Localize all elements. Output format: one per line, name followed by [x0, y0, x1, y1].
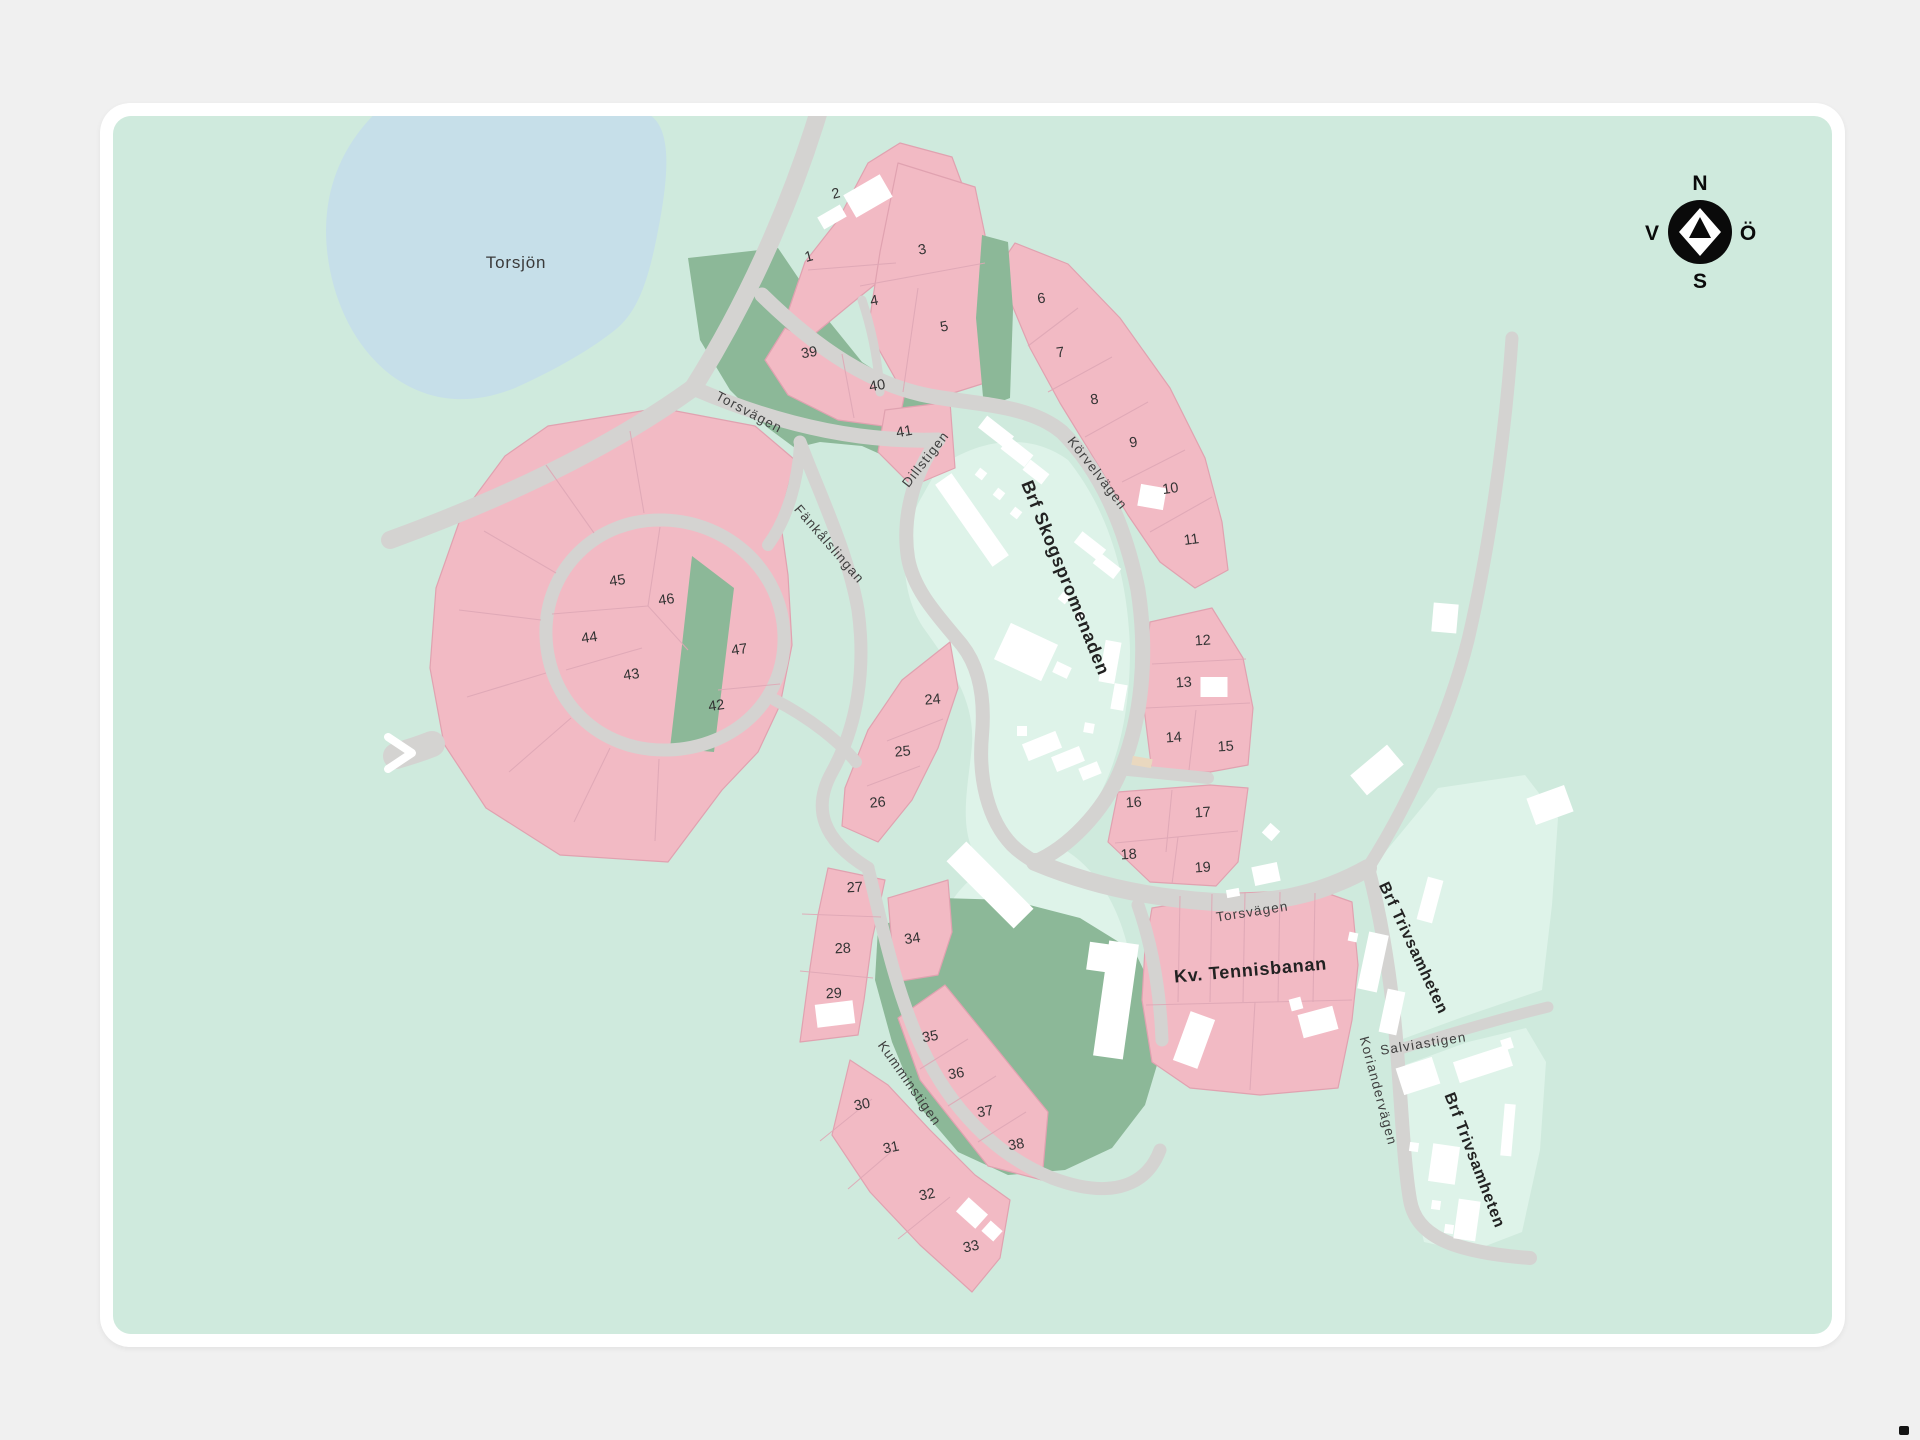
lot-number-37: 37 — [976, 1103, 995, 1122]
lake-label: Torsjön — [486, 253, 546, 272]
compass-east-label: Ö — [1740, 222, 1756, 245]
lot-number-27: 27 — [846, 880, 863, 897]
page: { "compass": {"north":"N","south":"S","w… — [0, 0, 1920, 1440]
lot-number-43: 43 — [622, 666, 640, 684]
lot-number-14: 14 — [1165, 729, 1182, 746]
lot-number-36: 36 — [947, 1065, 966, 1084]
lot-number-44: 44 — [580, 629, 598, 647]
lot-number-33: 33 — [962, 1238, 981, 1257]
lot-number-13: 13 — [1175, 674, 1192, 691]
screen-artifact-dot — [1899, 1426, 1909, 1435]
lot-number-26: 26 — [869, 794, 886, 811]
lot-number-25: 25 — [894, 743, 911, 760]
lot-number-16: 16 — [1125, 794, 1142, 811]
lot-number-34: 34 — [903, 930, 921, 948]
lot-number-18: 18 — [1120, 846, 1137, 863]
lot-number-24: 24 — [924, 691, 941, 708]
lot-number-46: 46 — [657, 591, 675, 609]
road-stub-deadend — [1128, 770, 1208, 778]
site-map: Torsjön Torsvägen Dillstigen Körvelvägen… — [113, 116, 1832, 1334]
lot-number-47: 47 — [730, 641, 748, 659]
lot-number-41: 41 — [895, 423, 914, 442]
lot-number-42: 42 — [707, 697, 725, 715]
map-card: Torsjön Torsvägen Dillstigen Körvelvägen… — [100, 103, 1845, 1347]
lot-number-15: 15 — [1217, 738, 1234, 755]
block-tennisbanan — [1142, 890, 1358, 1095]
lot-number-28: 28 — [834, 941, 851, 958]
lot-number-31: 31 — [882, 1139, 901, 1158]
lot-number-29: 29 — [825, 986, 842, 1003]
lot-number-19: 19 — [1194, 859, 1211, 876]
lot-number-32: 32 — [918, 1186, 937, 1205]
compass-north-label: N — [1692, 172, 1707, 195]
lot-number-11: 11 — [1183, 531, 1200, 549]
lot-number-40: 40 — [868, 377, 887, 396]
lot-number-39: 39 — [800, 344, 819, 363]
lot-number-12: 12 — [1194, 632, 1211, 649]
lot-number-17: 17 — [1194, 804, 1211, 821]
compass-west-label: V — [1645, 222, 1659, 245]
lot-number-10: 10 — [1161, 480, 1179, 498]
lot-number-45: 45 — [608, 572, 626, 590]
compass-south-label: S — [1693, 270, 1707, 293]
lot-number-30: 30 — [853, 1096, 872, 1115]
lot-number-35: 35 — [921, 1028, 940, 1047]
lot-number-38: 38 — [1007, 1136, 1026, 1155]
